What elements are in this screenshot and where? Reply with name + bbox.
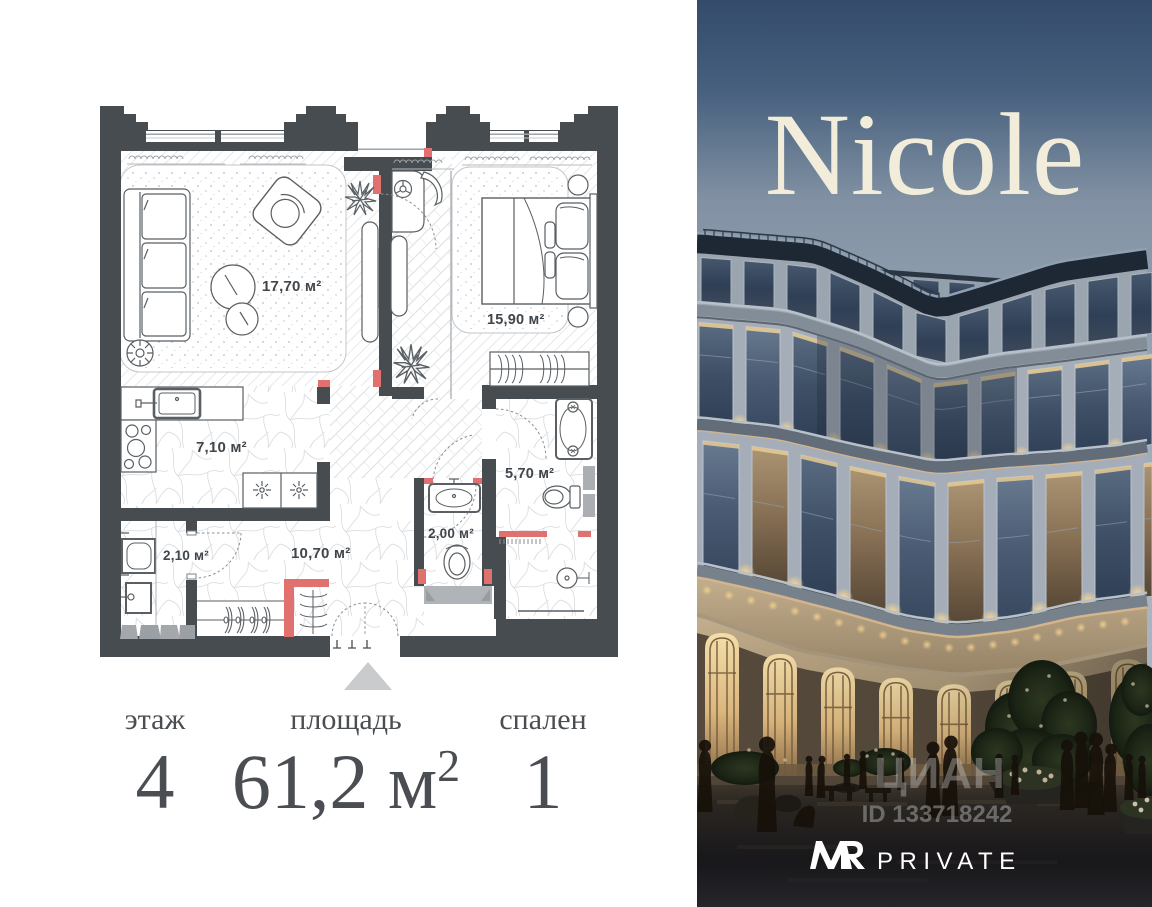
svg-text:15,90 м²: 15,90 м²	[487, 312, 544, 328]
svg-text:2,10 м²: 2,10 м²	[163, 548, 209, 563]
svg-text:PRIVATE: PRIVATE	[877, 848, 1022, 875]
svg-text:5,70 м²: 5,70 м²	[505, 466, 554, 482]
svg-text:10,70 м²: 10,70 м²	[291, 545, 350, 562]
svg-text:7,10 м²: 7,10 м²	[196, 439, 247, 456]
svg-text:17,70 м²: 17,70 м²	[262, 278, 321, 295]
svg-text:2,00 м²: 2,00 м²	[428, 526, 474, 541]
svg-text:ID 133718242: ID 133718242	[862, 801, 1013, 828]
svg-text:Nicole: Nicole	[765, 89, 1086, 220]
svg-text:ЦИАН: ЦИАН	[874, 749, 1005, 798]
